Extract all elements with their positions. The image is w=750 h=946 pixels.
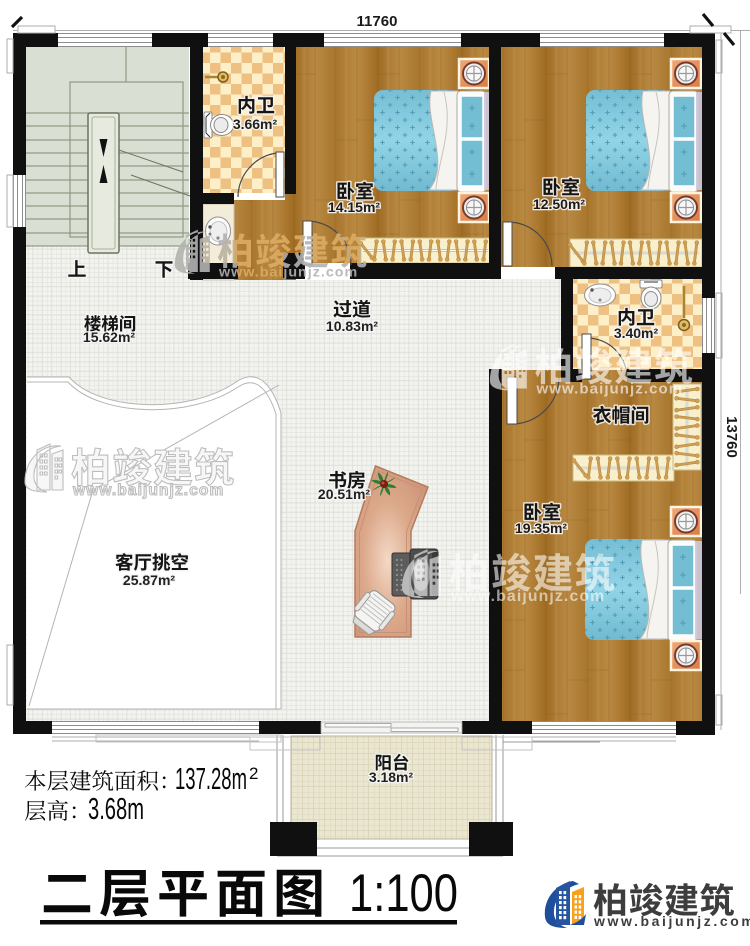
svg-text:12.50m²: 12.50m² <box>533 196 585 212</box>
svg-text:137.28m: 137.28m <box>175 761 247 796</box>
svg-text:3.66m²: 3.66m² <box>233 116 278 132</box>
svg-text:15.62m²: 15.62m² <box>83 329 135 345</box>
svg-text:3.18m²: 3.18m² <box>369 769 414 785</box>
svg-text:11760: 11760 <box>357 13 398 30</box>
svg-text:25.87m²: 25.87m² <box>123 572 175 588</box>
svg-text:2: 2 <box>249 764 258 783</box>
svg-text:20.51m²: 20.51m² <box>318 486 370 502</box>
svg-text:13760: 13760 <box>723 416 740 458</box>
svg-text:14.15m²: 14.15m² <box>328 199 380 215</box>
svg-text:www.baijunjz.com: www.baijunjz.com <box>593 913 750 929</box>
svg-text:1:100: 1:100 <box>349 864 458 923</box>
svg-text:19.35m²: 19.35m² <box>515 520 567 536</box>
svg-text:3.68m: 3.68m <box>88 791 144 826</box>
svg-text:10.83m²: 10.83m² <box>326 318 378 334</box>
svg-text:3.40m²: 3.40m² <box>614 325 659 341</box>
